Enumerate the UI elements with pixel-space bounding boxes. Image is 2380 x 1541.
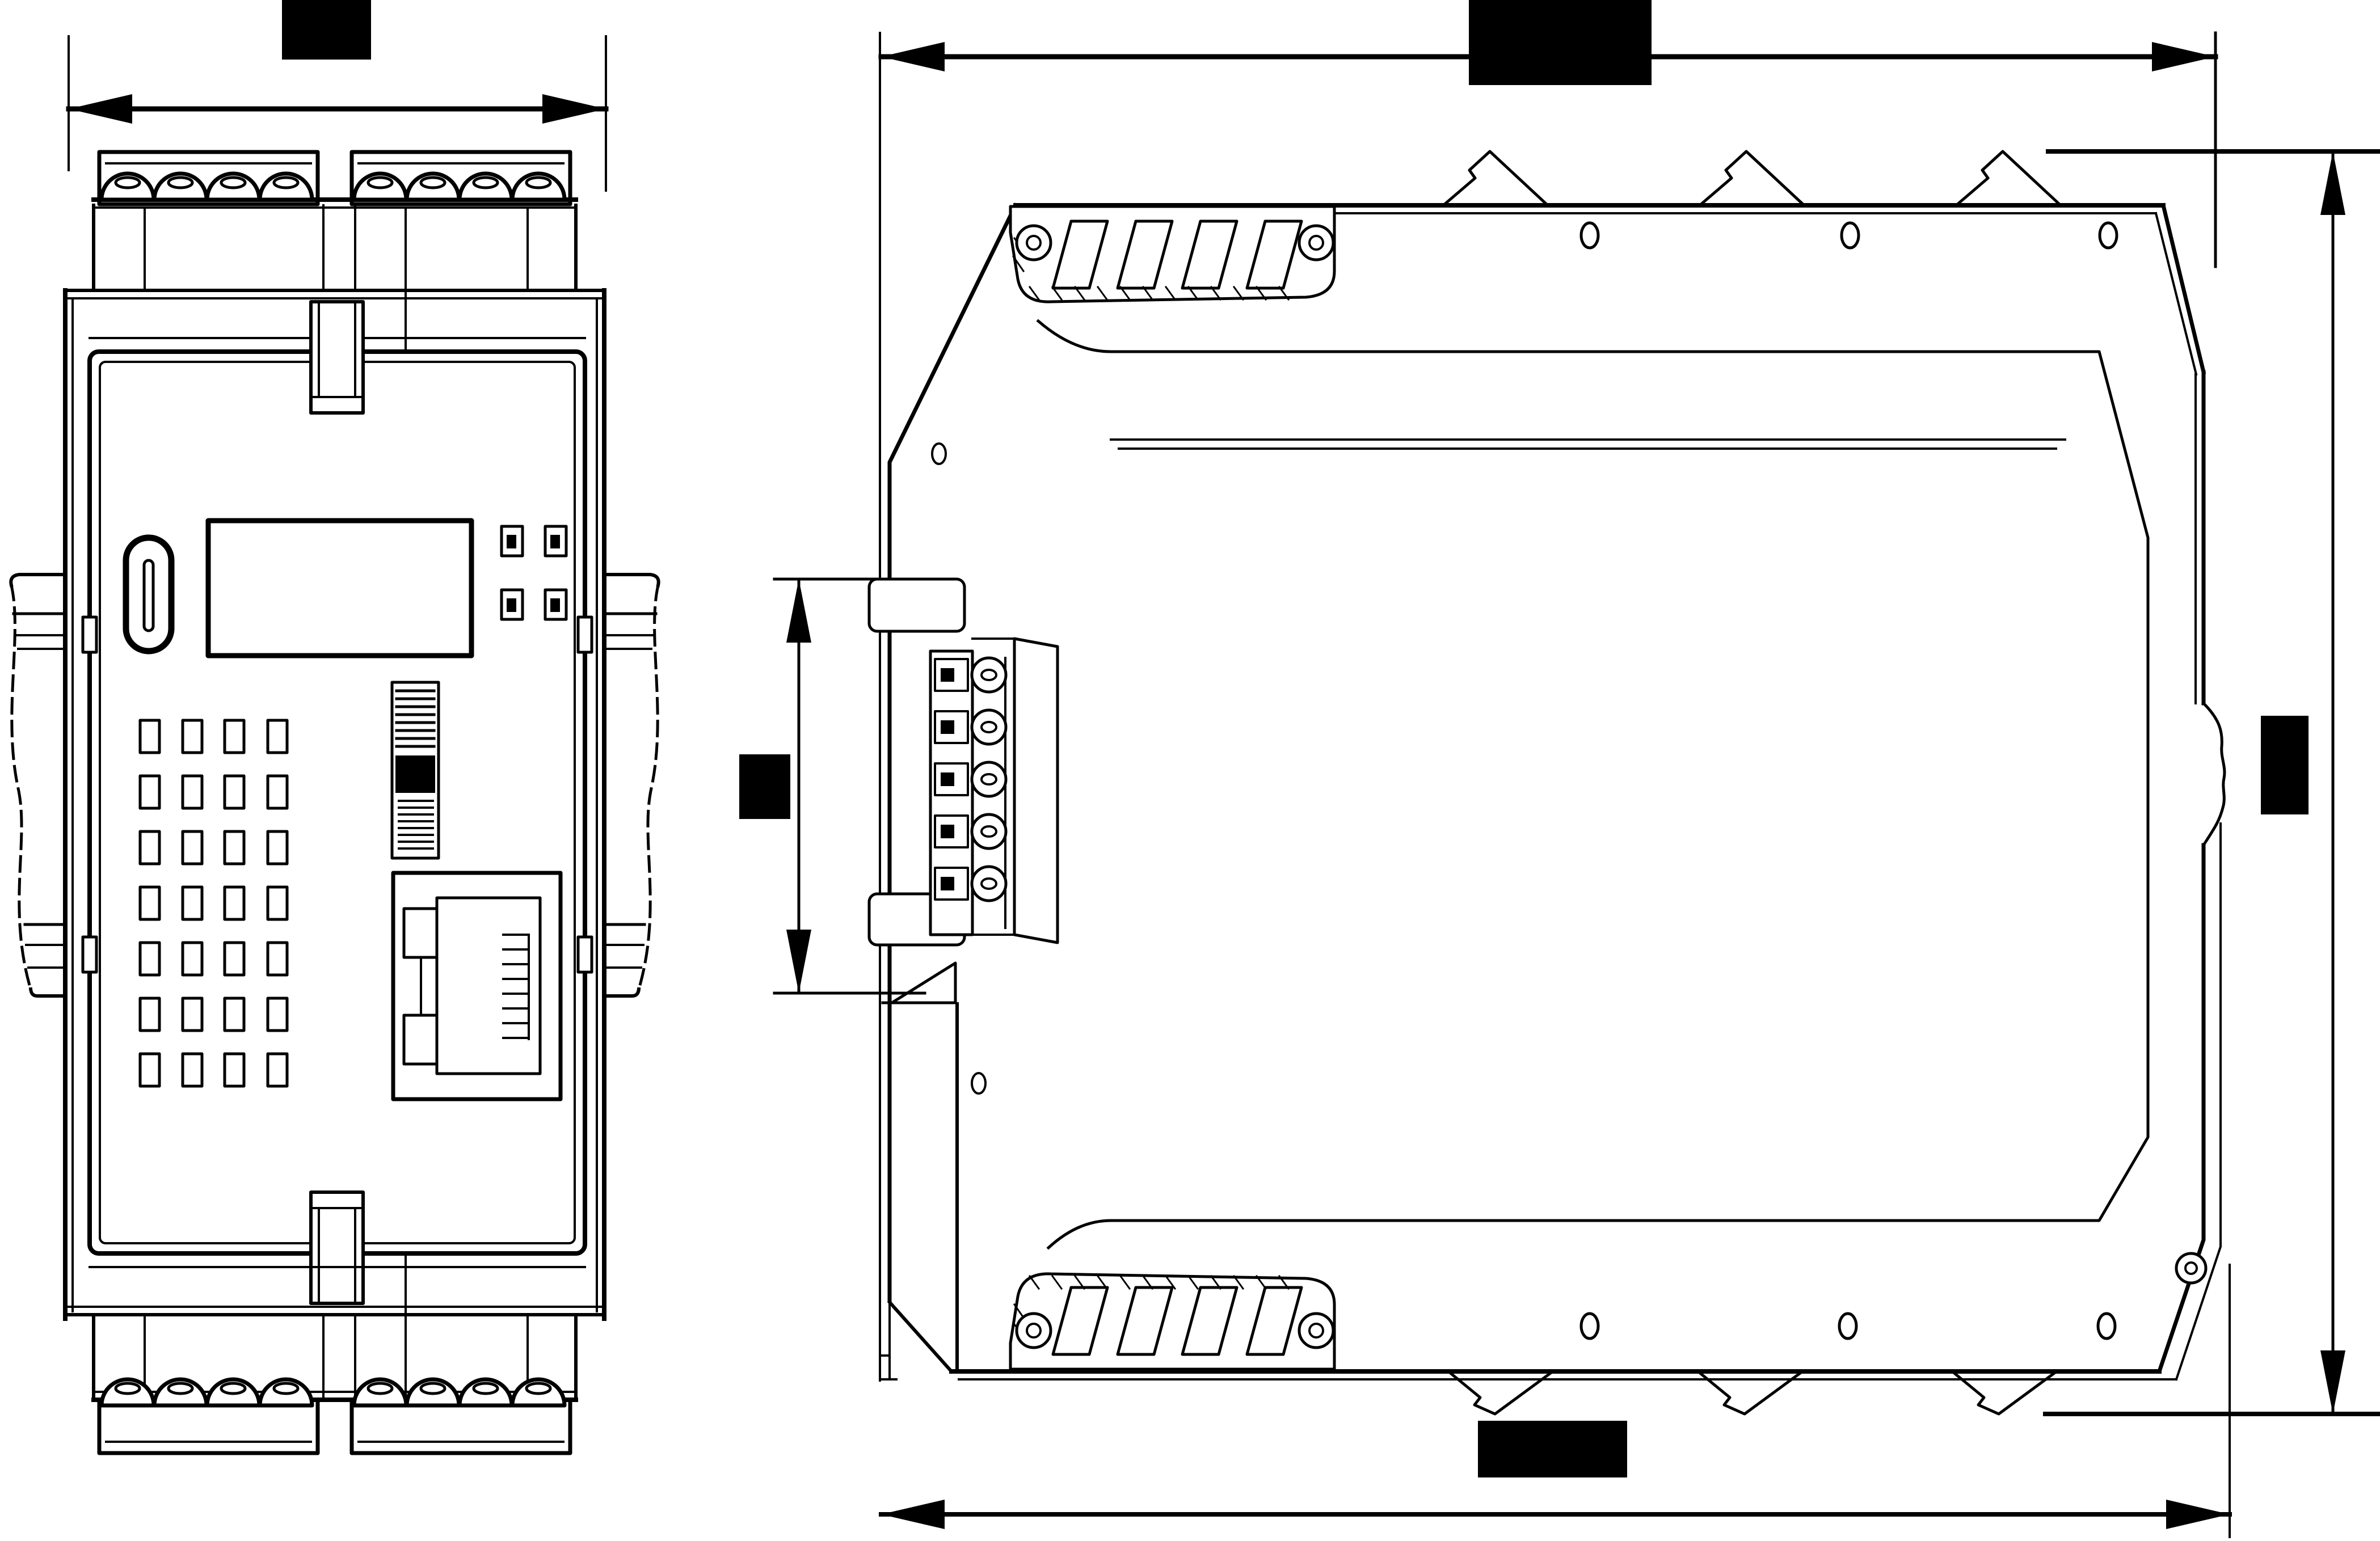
connector-body bbox=[930, 651, 972, 935]
left-break-wing bbox=[11, 575, 65, 996]
arrowhead-down bbox=[2320, 1350, 2345, 1414]
arrowhead-left bbox=[881, 42, 945, 71]
dimension-label-redacted-side-base-width bbox=[1478, 1421, 1627, 1477]
top-vent-louvers bbox=[1010, 206, 1334, 302]
front-view bbox=[11, 36, 658, 1453]
technical-drawing bbox=[0, 0, 2380, 1541]
hinge-tab bbox=[83, 617, 96, 652]
clip-release-latch[interactable] bbox=[892, 963, 955, 1003]
din-clip-connector bbox=[869, 579, 1058, 1003]
clip-upper-flange bbox=[869, 579, 964, 631]
arrowhead-up bbox=[786, 579, 811, 643]
arrowhead-left bbox=[881, 1500, 945, 1529]
drawing-sheet bbox=[0, 0, 2380, 1541]
clip-teeth-bottom bbox=[1448, 1371, 2057, 1414]
arrowhead-right bbox=[2152, 42, 2215, 71]
top-center-tab bbox=[311, 302, 363, 413]
connector-side-plate bbox=[1014, 639, 1058, 943]
panel-screw-holes bbox=[932, 223, 2117, 1339]
top-terminal-screws bbox=[102, 174, 565, 200]
bottom-vent-louvers bbox=[1010, 1274, 1334, 1369]
corner-screw bbox=[2176, 1253, 2206, 1283]
hinge-tab bbox=[578, 617, 592, 652]
arrowhead-down bbox=[786, 930, 811, 993]
clip-teeth-top bbox=[1443, 151, 2061, 205]
arrowhead-right bbox=[542, 94, 606, 124]
arrowhead-up bbox=[2320, 151, 2345, 215]
arrowhead-right bbox=[2166, 1500, 2230, 1529]
side-view bbox=[774, 33, 2380, 1537]
dimension-label-redacted-side-overall-width bbox=[1469, 0, 1652, 85]
bottom-center-tab bbox=[311, 1192, 363, 1303]
right-break-wing bbox=[604, 575, 659, 996]
dimension-label-redacted-din-clip-height bbox=[739, 754, 790, 819]
dimension-label-redacted-side-overall-height bbox=[2261, 716, 2309, 814]
arrowhead-left bbox=[69, 94, 132, 124]
dimension-label-redacted-front-overall-width bbox=[282, 0, 371, 60]
dimension-side-overall-height bbox=[2045, 151, 2380, 1414]
hinge-tab bbox=[83, 937, 96, 972]
hinge-tab bbox=[578, 937, 592, 972]
